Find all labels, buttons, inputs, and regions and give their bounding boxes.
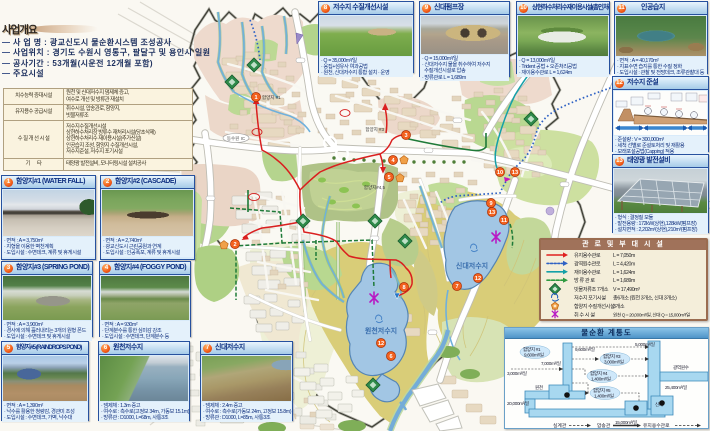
svg-text:동수원 IC: 동수원 IC [227, 135, 246, 142]
svg-text:3,000m³/일: 3,000m³/일 [604, 359, 624, 365]
svg-text:함양지 #1: 함양지 #1 [262, 94, 281, 101]
svg-text:유지용수관로: 유지용수관로 [574, 251, 601, 259]
svg-text:11: 11 [501, 218, 507, 224]
svg-text:광역원수: 광역원수 [673, 364, 689, 371]
svg-text:13: 13 [489, 210, 495, 216]
svg-text:유지용수관로: 유지용수관로 [643, 422, 670, 429]
svg-text:2: 2 [233, 242, 236, 248]
svg-text:L = 7,050m: L = 7,050m [613, 253, 635, 259]
svg-text:8: 8 [402, 285, 405, 291]
svg-text:7: 7 [455, 284, 458, 290]
svg-text:12: 12 [378, 341, 384, 347]
svg-text:함양지 #3: 함양지 #3 [365, 126, 384, 133]
svg-text:12: 12 [475, 276, 481, 282]
svg-text:함양지#4,5: 함양지#4,5 [364, 184, 386, 191]
svg-text:원천 Q = 20,000m³/일, 신대 Q = 15,0: 원천 Q = 20,000m³/일, 신대 Q = 15,000m³/일 [613, 312, 690, 319]
svg-text:총6개소 (원천 3개소, 신대 3개소): 총6개소 (원천 3개소, 신대 3개소) [613, 294, 677, 302]
svg-text:3: 3 [404, 133, 407, 139]
svg-text:7,000m³/일: 7,000m³/일 [541, 360, 561, 366]
svg-text:5,000m³/일: 5,000m³/일 [635, 341, 655, 347]
svg-text:9,600m³/일: 9,600m³/일 [575, 346, 595, 352]
svg-text:취 수 시 설: 취 수 시 설 [574, 311, 595, 319]
svg-text:10: 10 [497, 170, 503, 176]
svg-text:재이용수관로: 재이용수관로 [574, 268, 601, 276]
svg-text:9,600m³/일: 9,600m³/일 [524, 352, 544, 358]
svg-text:1,400m³/일: 1,400m³/일 [594, 393, 614, 399]
svg-text:L = 1,689m: L = 1,689m [613, 278, 635, 284]
svg-text:9: 9 [489, 201, 492, 207]
svg-text:13: 13 [512, 170, 518, 176]
svg-text:함양지 수질개선시설: 함양지 수질개선시설 [574, 302, 615, 310]
svg-text:원천저수지: 원천저수지 [365, 326, 397, 335]
svg-text:5: 5 [387, 175, 390, 181]
svg-text:L = 4,420m: L = 4,420m [613, 261, 635, 267]
svg-text:3,000m³/일: 3,000m³/일 [507, 370, 527, 376]
svg-text:실계관: 실계관 [553, 422, 567, 429]
svg-text:3개소: 3개소 [613, 302, 625, 310]
svg-text:6: 6 [389, 354, 392, 360]
svg-text:빗물저류조 7개소: 빗물저류조 7개소 [574, 285, 609, 293]
svg-text:25,400m³/일: 25,400m³/일 [665, 384, 687, 390]
svg-text:V = 17,490m³: V = 17,490m³ [613, 287, 640, 293]
svg-text:15,000m³/일: 15,000m³/일 [615, 419, 637, 425]
svg-text:원천: 원천 [535, 384, 543, 390]
svg-text:광역원수관로: 광역원수관로 [574, 259, 601, 267]
svg-text:방 류 관 로: 방 류 관 로 [574, 276, 595, 284]
svg-text:1: 1 [254, 95, 257, 101]
svg-text:신대저수지: 신대저수지 [456, 261, 488, 270]
svg-text:1,400m³/일: 1,400m³/일 [591, 376, 611, 382]
svg-text:저수지 포기시설: 저수지 포기시설 [574, 294, 606, 302]
svg-text:압송관: 압송관 [597, 422, 611, 429]
svg-text:20,000m³/일: 20,000m³/일 [507, 400, 529, 406]
svg-text:L = 1,624m: L = 1,624m [613, 270, 635, 276]
